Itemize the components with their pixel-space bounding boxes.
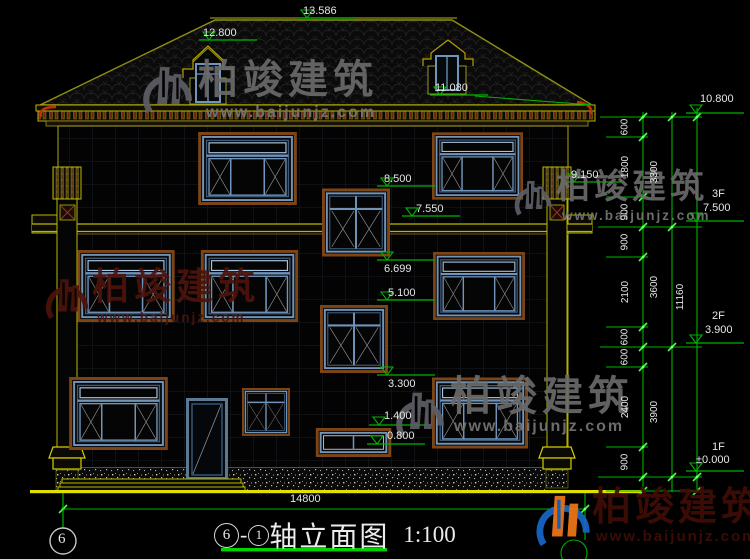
watermark-site: www.baijunjz.com [97, 310, 246, 325]
level-label: 11.080 [435, 83, 468, 94]
title-axis-to: 1 [248, 525, 269, 546]
marker-3900 [686, 335, 744, 343]
cad-elevation-drawing: 柏竣建筑 www.baijunjz.com 柏竣建筑 www.baijunjz.… [0, 0, 750, 559]
level-label: 8.500 [384, 174, 412, 185]
dim-label-total-width: 14800 [290, 494, 321, 505]
marker-10800 [686, 105, 744, 113]
right-floor-label: 2F [712, 311, 725, 322]
level-label: 13.586 [303, 6, 337, 17]
title-dash: - [240, 522, 247, 548]
window-3f-right [433, 134, 521, 199]
dim-label: 900 [620, 204, 630, 221]
watermark-brand: 柏竣建筑 [592, 488, 750, 527]
window-stair-mid [321, 306, 386, 371]
brand-logo-color-icon [534, 488, 592, 556]
brand-logo-icon [513, 170, 553, 228]
watermark-brand: 柏竣建筑 [198, 60, 378, 100]
title-text: 轴立面图 [269, 515, 389, 555]
window-stair-low [317, 429, 390, 455]
window-1f-small [243, 389, 289, 435]
level-label: 0.800 [387, 431, 415, 442]
brand-logo-icon [44, 268, 90, 332]
level-label: 1.400 [384, 411, 412, 422]
level-label: 12.800 [203, 28, 237, 39]
right-level-value: ±0.000 [696, 455, 730, 466]
title-axis-from: 6 [214, 523, 239, 548]
dim-label: 2400 [621, 396, 631, 418]
watermark-brand: 柏竣建筑 [450, 376, 634, 417]
dim-label: 1800 [621, 156, 631, 178]
right-floor-label: 3F [712, 189, 725, 200]
title-scale: 1:100 [403, 522, 455, 548]
dim-label: 900 [620, 234, 630, 251]
dim-label: 2100 [621, 281, 631, 303]
drawing-title: 6 - 1 轴立面图 1:100 [214, 515, 456, 555]
dim-label: 600 [620, 329, 630, 346]
window-3f-center [200, 133, 296, 203]
dim-label: 600 [620, 349, 630, 366]
entry-door [188, 400, 227, 479]
right-level-value: 3.900 [705, 325, 733, 336]
right-floor-label: 1F [712, 442, 725, 453]
dim-label: 3900 [650, 401, 660, 423]
level-label: 5.100 [388, 288, 416, 299]
dim-label: 3600 [650, 276, 660, 298]
dim-label-total-height: 11160 [676, 284, 686, 310]
right-level-value: 10.800 [700, 94, 734, 105]
axis-bubble-6-label: 6 [58, 534, 66, 545]
dim-label: 900 [620, 454, 630, 471]
level-label: 9.150 [571, 170, 599, 181]
level-label: 6.699 [384, 264, 412, 275]
watermark-site: www.baijunjz.com [562, 208, 711, 223]
level-label: 3.300 [388, 379, 416, 390]
brand-logo-icon [140, 60, 195, 122]
right-level-value: 7.500 [703, 203, 731, 214]
window-2f-right [434, 253, 523, 318]
level-label: 7.550 [416, 204, 444, 215]
watermark-site: www.baijunjz.com [454, 418, 624, 436]
watermark-site: www.baijunjz.com [206, 104, 376, 122]
dim-label: 3300 [650, 161, 660, 183]
window-stair-upper [323, 190, 388, 255]
watermark-brand: 柏竣建筑 [92, 268, 260, 305]
window-1f-left [71, 378, 167, 448]
watermark-site: www.baijunjz.com [596, 528, 750, 545]
dim-label: 600 [620, 119, 630, 136]
